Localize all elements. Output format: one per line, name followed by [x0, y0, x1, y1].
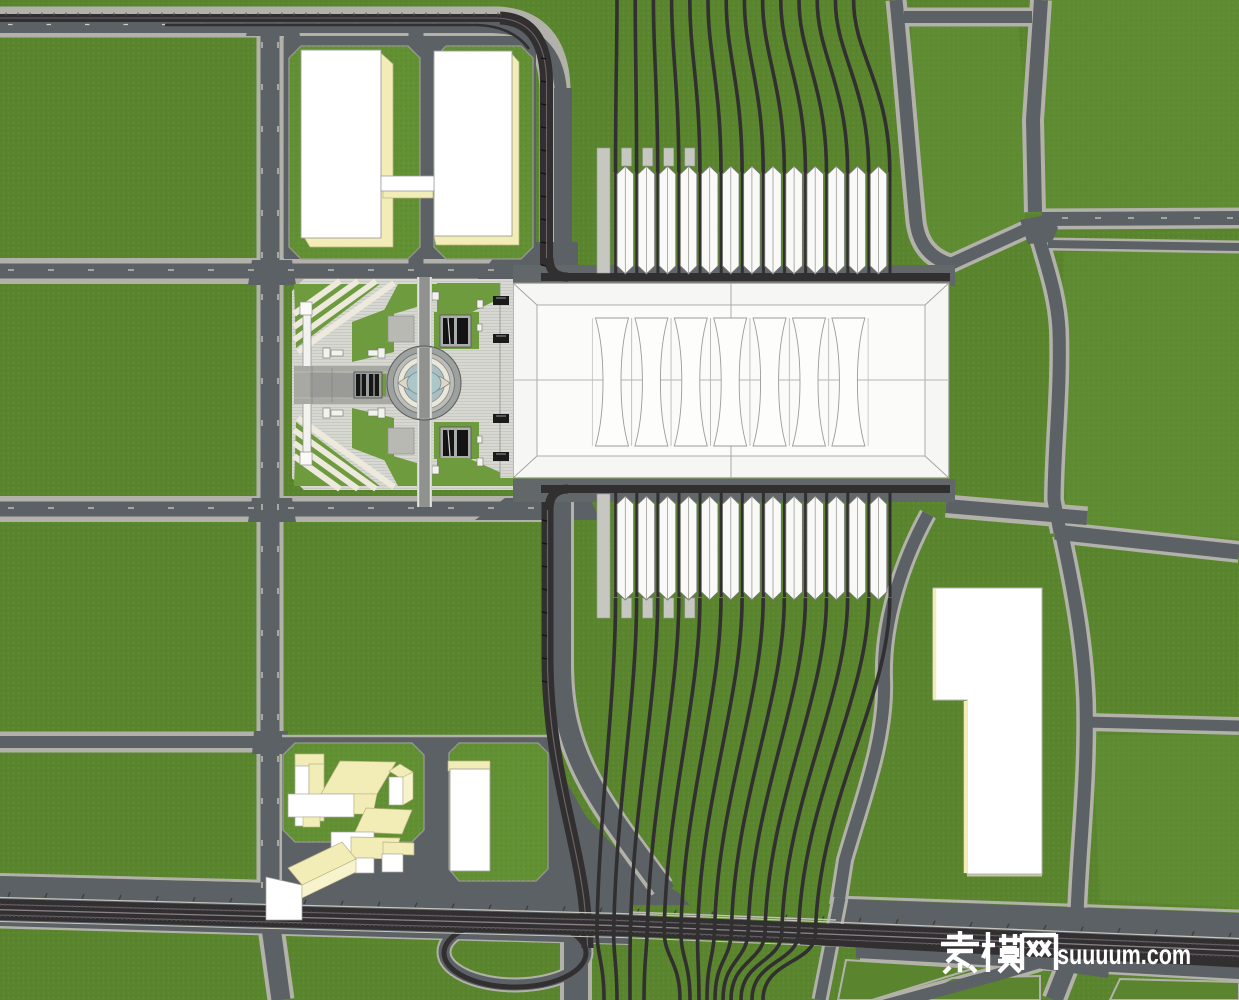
- svg-text:suuuum.com: suuuum.com: [1057, 939, 1191, 970]
